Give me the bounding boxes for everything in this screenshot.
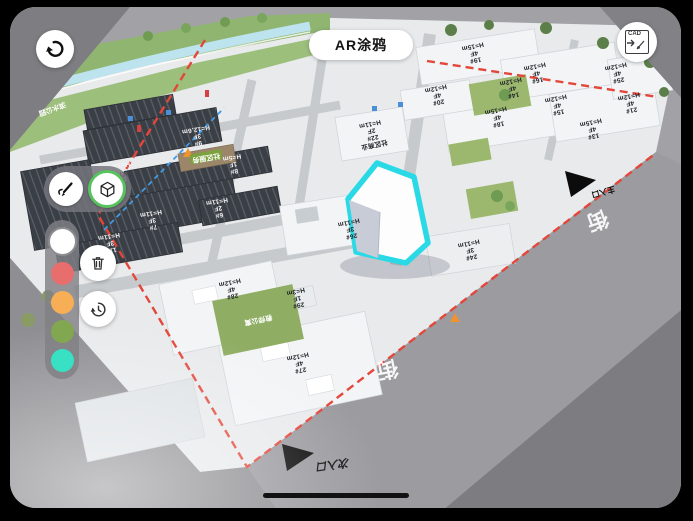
color-swatch-teal[interactable]	[51, 349, 74, 372]
mode-title-pill[interactable]: AR涂鸦	[309, 30, 413, 60]
ar-camera-view[interactable]: 9#3FH=12.6m8#1FH=5m10#4FH=15m7#3FH=11m6#…	[10, 7, 681, 508]
color-swatch-orange[interactable]	[51, 291, 74, 314]
mode-title: AR涂鸦	[335, 35, 387, 55]
tool-selector	[44, 166, 131, 212]
delete-button[interactable]	[80, 245, 116, 281]
pen-tool-button[interactable]	[49, 172, 83, 206]
color-palette	[45, 220, 79, 379]
pen-scribble-icon	[56, 179, 76, 199]
color-swatch-white[interactable]	[48, 227, 77, 256]
undo-arrow-icon	[42, 36, 69, 63]
history-button[interactable]	[80, 291, 116, 327]
tablet-screen: 9#3FH=12.6m8#1FH=5m10#4FH=15m7#3FH=11m6#…	[10, 7, 681, 508]
cube-icon	[98, 180, 117, 199]
home-indicator[interactable]	[263, 493, 409, 498]
back-button[interactable]	[36, 30, 74, 68]
trash-icon	[89, 254, 107, 272]
color-swatch-red[interactable]	[51, 262, 74, 285]
color-swatch-green[interactable]	[51, 320, 74, 343]
history-clock-icon	[89, 300, 108, 319]
cad-icon: CAD	[625, 30, 649, 54]
cad-export-button[interactable]: CAD	[617, 22, 657, 62]
tablet-device: 9#3FH=12.6m8#1FH=5m10#4FH=15m7#3FH=11m6#…	[0, 0, 693, 521]
cube-tool-button[interactable]	[88, 170, 126, 208]
